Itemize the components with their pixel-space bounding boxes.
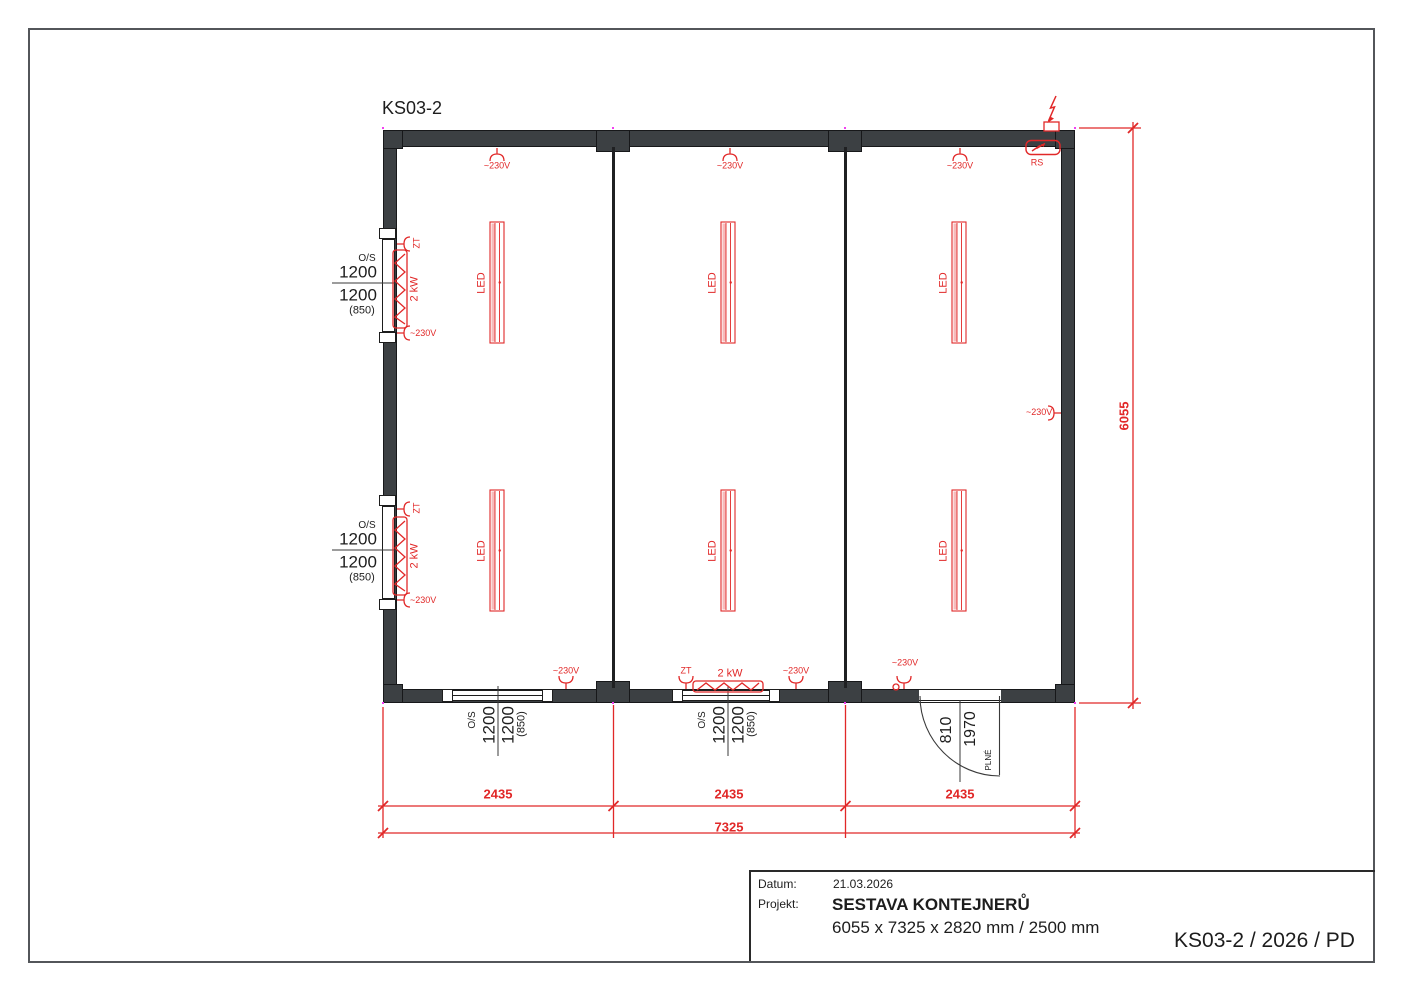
socket-bottom-2-label: ~230V <box>783 667 809 676</box>
dim-segment-1: 2435 <box>484 788 513 801</box>
window-bottom-1-height: 1200 <box>500 706 517 744</box>
dim-total-width: 7325 <box>715 821 744 834</box>
titleblock-date-value: 21.03.2026 <box>833 878 893 890</box>
socket-zt-1 <box>397 237 410 251</box>
led-6-label: LED <box>939 540 950 561</box>
socket-top-2 <box>723 148 737 161</box>
window-left-2-height: 1200 <box>339 554 377 571</box>
titleblock-project-size: 6055 x 7325 x 2820 mm / 2500 mm <box>832 919 1099 936</box>
socket-bottom-3-label: ~230V <box>892 659 918 668</box>
window-bottom-1-type: O/S <box>468 711 478 728</box>
heater-left-1-label: 2 kW <box>410 276 421 301</box>
socket-zt-2-label: ZT <box>413 503 422 514</box>
window-bottom-2-parapet: (850) <box>747 711 758 737</box>
plan-graphics <box>0 0 1403 992</box>
window-bottom-1-width: 1200 <box>481 706 498 744</box>
dim-segment-3: 2435 <box>946 788 975 801</box>
socket-top-1-label: ~230V <box>484 162 510 171</box>
window-bottom-2-type: O/S <box>698 711 708 728</box>
led-3-label: LED <box>939 272 950 293</box>
led-4 <box>490 490 504 611</box>
window-bottom-2-width: 1200 <box>711 706 728 744</box>
door-type-label: PLNÉ <box>985 750 993 771</box>
window-bottom-2-height: 1200 <box>730 706 747 744</box>
led-3 <box>952 222 966 343</box>
switchboard <box>1026 96 1060 155</box>
door-width-label: 810 <box>939 717 955 744</box>
heaters <box>393 250 763 692</box>
heater-left-1 <box>393 250 407 328</box>
socket-right-label: ~230V <box>1026 408 1052 417</box>
dim-segment-2: 2435 <box>715 788 744 801</box>
socket-bottom-1 <box>559 676 573 689</box>
socket-left-2-label: ~230V <box>410 596 436 605</box>
socket-top-1 <box>490 148 504 161</box>
socket-left-1-label: ~230V <box>410 329 436 338</box>
socket-zt-bottom <box>679 676 693 689</box>
dim-total-depth: 6055 <box>1118 402 1131 431</box>
drawing-sheet: KS03-2 <box>0 0 1403 992</box>
socket-top-2-label: ~230V <box>717 162 743 171</box>
window-left-1-parapet: (850) <box>349 306 375 317</box>
led-2-label: LED <box>708 272 719 293</box>
switchboard-box <box>1026 141 1060 155</box>
socket-bottom-2 <box>789 676 803 689</box>
titleblock-date-label: Datum: <box>758 878 797 890</box>
titleblock-project-name: SESTAVA KONTEJNERŮ <box>832 896 1030 913</box>
snap-markers <box>382 127 1076 704</box>
heater-bottom-label: 2 kW <box>717 669 742 680</box>
window-left-2-parapet: (850) <box>349 573 375 584</box>
socket-zt-bottom-label: ZT <box>681 667 692 676</box>
window-left-1-height: 1200 <box>339 287 377 304</box>
switchboard-label: RS <box>1031 159 1044 168</box>
titleblock-project-label: Projekt: <box>758 898 799 910</box>
supply-entry-box <box>1044 122 1059 131</box>
led-5-label: LED <box>708 540 719 561</box>
centre-lines <box>332 283 960 782</box>
heater-left-2-label: 2 kW <box>410 543 421 568</box>
titleblock-doc-code: KS03-2 / 2026 / PD <box>1174 930 1355 951</box>
socket-zt-1-label: ZT <box>413 238 422 249</box>
led-1-label: LED <box>477 272 488 293</box>
titleblock-left-line <box>749 870 751 961</box>
led-5 <box>721 490 735 611</box>
socket-zt-2 <box>397 502 410 516</box>
socket-bottom-3-circle <box>893 684 899 690</box>
supply-bolt-icon <box>1049 96 1057 121</box>
led-luminaires <box>490 222 966 611</box>
door-height-label: 1970 <box>963 711 979 747</box>
titleblock-top-line <box>749 870 1375 872</box>
window-left-1-width: 1200 <box>339 264 377 281</box>
led-6 <box>952 490 966 611</box>
socket-top-3-label: ~230V <box>947 162 973 171</box>
window-left-2-width: 1200 <box>339 531 377 548</box>
led-4-label: LED <box>477 540 488 561</box>
heater-left-2 <box>393 517 407 595</box>
socket-top-3 <box>953 148 967 161</box>
led-2 <box>721 222 735 343</box>
window-bottom-1-parapet: (850) <box>517 711 528 737</box>
led-1 <box>490 222 504 343</box>
socket-bottom-1-label: ~230V <box>553 667 579 676</box>
